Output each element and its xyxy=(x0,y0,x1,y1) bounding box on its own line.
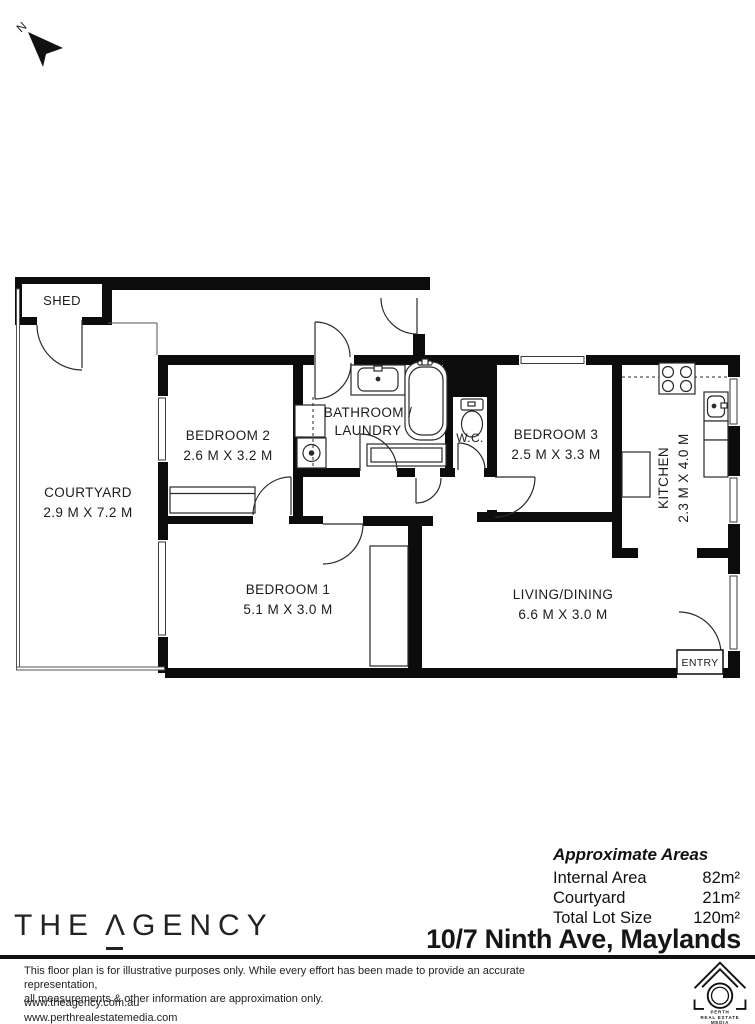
area-row: Internal Area 82m² xyxy=(553,868,740,888)
entry-box: ENTRY xyxy=(677,650,723,674)
living-dims: 6.6 M X 3.0 M xyxy=(518,607,607,622)
the-agency-logo: THEΛGENCY xyxy=(14,909,274,943)
north-label: N xyxy=(14,19,30,35)
wc-label: W.C. xyxy=(456,431,484,445)
prem-text-1: PERTH xyxy=(710,1010,729,1015)
bathtub xyxy=(405,359,447,440)
bath-bench xyxy=(367,444,446,466)
linen-cupboard xyxy=(295,405,325,437)
bedroom3-dims: 2.5 M X 3.3 M xyxy=(511,447,600,462)
footer-urls: www.theagency.com.au www.perthrealestate… xyxy=(24,996,177,1024)
stove-cooktop xyxy=(659,363,695,394)
window-bedroom2-left xyxy=(156,396,170,462)
logo-gency: GENCY xyxy=(132,909,274,942)
bedroom3-door xyxy=(495,477,535,517)
courtyard-label: COURTYARD xyxy=(44,485,132,500)
bedroom2-door xyxy=(253,477,291,515)
bedroom1-door xyxy=(323,524,363,564)
prem-house-icon xyxy=(695,963,746,1009)
property-address: 10/7 Ninth Ave, Maylands xyxy=(426,924,741,955)
area-row: Courtyard 21m² xyxy=(553,888,740,908)
window-kitchen-right-1 xyxy=(727,377,741,426)
window-kitchen-right-2 xyxy=(727,476,741,524)
approximate-areas: Approximate Areas Internal Area 82m² Cou… xyxy=(553,845,740,928)
porch-door xyxy=(381,298,417,334)
divider-line xyxy=(0,955,755,959)
prem-text-2: REAL ESTATE xyxy=(701,1015,740,1020)
logo-a-letter: Λ xyxy=(105,909,132,942)
vanity-sink xyxy=(351,365,405,395)
kitchen-counter xyxy=(704,440,728,477)
prem-text-3: MEDIA xyxy=(711,1020,729,1024)
living-label: LIVING/DINING xyxy=(513,587,613,602)
floorplan-page: N xyxy=(0,0,755,1024)
north-arrow-icon xyxy=(28,32,63,67)
bedroom2-dims: 2.6 M X 3.2 M xyxy=(183,448,272,463)
area-label: Internal Area xyxy=(553,868,647,888)
agency-url: www.theagency.com.au xyxy=(24,996,177,1011)
entry-door xyxy=(679,612,721,654)
areas-heading: Approximate Areas xyxy=(553,845,740,865)
entry-label: ENTRY xyxy=(682,657,719,669)
bedroom1-robe xyxy=(370,546,408,666)
shed-door xyxy=(37,320,82,370)
window-bedroom3-top xyxy=(519,353,586,367)
window-living-right xyxy=(727,574,741,651)
logo-a-glyph: Λ xyxy=(105,909,132,943)
bedroom2-robe xyxy=(170,487,255,513)
area-value: 82m² xyxy=(702,868,740,888)
bedroom1-label: BEDROOM 1 xyxy=(246,582,331,597)
courtyard-fence xyxy=(17,289,165,670)
perth-real-estate-media-logo: PERTH REAL ESTATE MEDIA xyxy=(690,958,750,1024)
shed-label: SHED xyxy=(43,293,81,308)
kitchen-label: KITCHEN xyxy=(656,447,671,509)
disclaimer-line-1: This floor plan is for illustrative purp… xyxy=(24,964,584,992)
logo-a-underscore xyxy=(106,947,123,950)
logo-the: THE xyxy=(14,909,95,942)
kitchen-dims: 2.3 M X 4.0 M xyxy=(676,433,691,522)
bathroom-label-1: BATHROOM / xyxy=(324,405,413,420)
bedroom2-label: BEDROOM 2 xyxy=(186,428,271,443)
media-url: www.perthrealestatemedia.com xyxy=(24,1011,177,1024)
kitchen-sink xyxy=(704,392,728,421)
north-arrow: N xyxy=(14,19,63,67)
bedroom1-dims: 5.1 M X 3.0 M xyxy=(243,602,332,617)
kitchen-island xyxy=(622,452,650,497)
area-label: Courtyard xyxy=(553,888,625,908)
area-value: 21m² xyxy=(702,888,740,908)
wc-door xyxy=(458,443,485,470)
cupboard-door xyxy=(416,478,441,503)
bathroom-label-2: LAUNDRY xyxy=(334,423,401,438)
courtyard-dims: 2.9 M X 7.2 M xyxy=(43,505,132,520)
bedroom3-label: BEDROOM 3 xyxy=(514,427,599,442)
window-bedroom1-left xyxy=(156,540,170,637)
kitchen-counter xyxy=(704,421,728,440)
floorplan-drawing: N xyxy=(0,0,755,760)
